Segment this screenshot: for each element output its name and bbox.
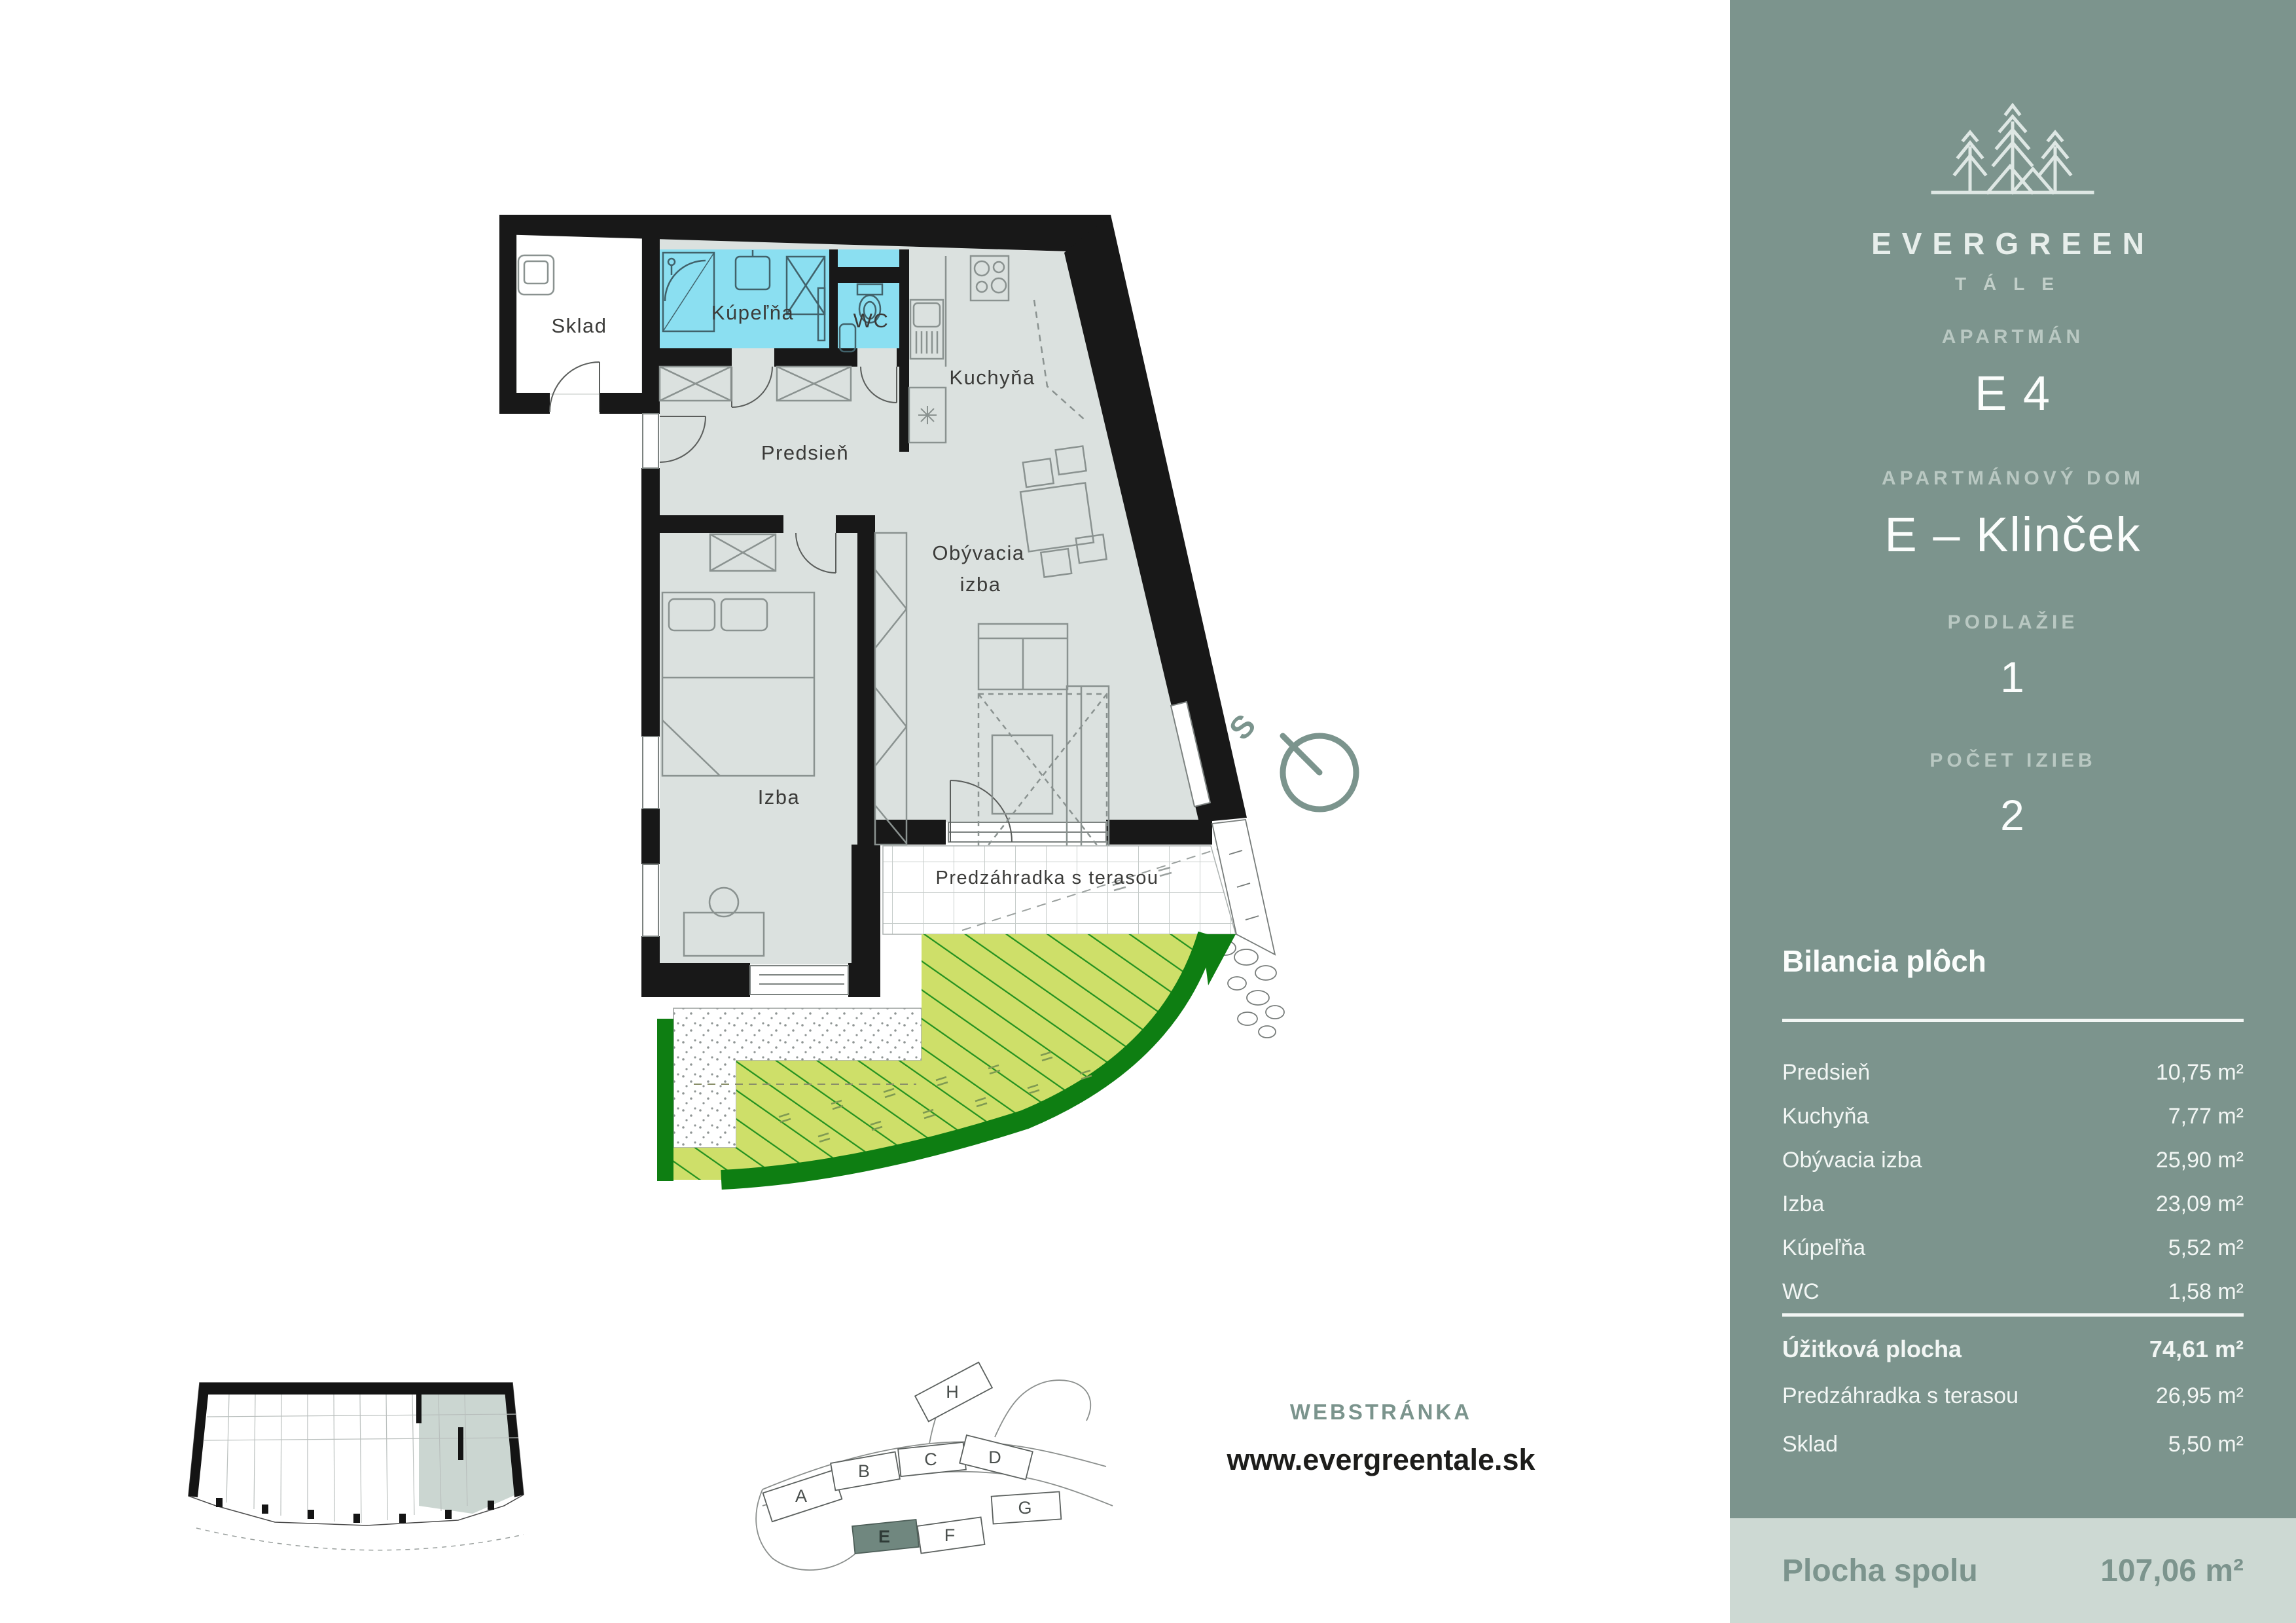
balance-row: Kuchyňa 7,77 m² (1782, 1104, 2244, 1129)
evergreen-trees-icon (1914, 84, 2111, 208)
brand-name: EVERGREEN (1730, 226, 2296, 261)
balance-title: Bilancia plôch (1782, 943, 1986, 979)
row-value: 26,95 m² (2156, 1383, 2244, 1409)
field-apartman-label: APARTMÁN (1730, 326, 2296, 348)
site-label-a: A (795, 1486, 807, 1506)
field-izby-value: 2 (1730, 790, 2296, 840)
building-mini-plan (188, 1383, 524, 1550)
brand-subtitle: TÁLE (1730, 274, 2296, 295)
row-label: Izba (1782, 1192, 1824, 1217)
row-value: 74,61 m² (2149, 1336, 2244, 1363)
row-label: Predzáhradka s terasou (1782, 1383, 2018, 1409)
field-podlazie-label: PODLAŽIE (1730, 611, 2296, 634)
row-label: Obývacia izba (1782, 1148, 1922, 1173)
room-label-wc: WC (853, 309, 889, 332)
apartment-floorplan: Sklad Kúpeľňa WC Kuchyňa Predsieň Obývac… (499, 215, 1284, 1181)
balance-row: Izba 23,09 m² (1782, 1192, 2244, 1217)
site-map: A B C D E F G H (756, 1362, 1113, 1570)
brochure-page: Sklad Kúpeľňa WC Kuchyňa Predsieň Obývac… (0, 0, 2296, 1623)
summary-row-sklad: Sklad 5,50 m² (1782, 1432, 2244, 1457)
row-label: Kuchyňa (1782, 1104, 1869, 1129)
room-label-obyvacia-2: izba (960, 573, 1001, 596)
room-label-izba: Izba (758, 786, 800, 809)
total-value: 107,06 m² (2100, 1553, 2244, 1589)
kupelna-floor (660, 249, 829, 348)
room-label-obyvacia-1: Obývacia (932, 541, 1024, 564)
site-label-b: B (858, 1461, 870, 1481)
row-value: 10,75 m² (2156, 1060, 2244, 1085)
row-label: Sklad (1782, 1432, 1838, 1457)
balance-row: Kúpeľňa 5,52 m² (1782, 1235, 2244, 1261)
row-value: 25,90 m² (2156, 1148, 2244, 1173)
total-area-bar: Plocha spolu 107,06 m² (1730, 1518, 2296, 1623)
field-podlazie-value: 1 (1730, 652, 2296, 702)
site-label-f: F (944, 1525, 956, 1545)
row-label: Predsieň (1782, 1060, 1870, 1085)
row-value: 7,77 m² (2168, 1104, 2244, 1129)
site-label-e: E (878, 1527, 890, 1546)
row-value: 5,52 m² (2168, 1235, 2244, 1261)
field-apartman-value: E 4 (1730, 365, 2296, 421)
site-label-h: H (946, 1382, 959, 1402)
balance-divider-bottom (1782, 1313, 2244, 1317)
summary-row-predzahradka: Predzáhradka s terasou 26,95 m² (1782, 1383, 2244, 1409)
field-izby-label: POČET IZIEB (1730, 750, 2296, 772)
balance-divider-top (1782, 1019, 2244, 1022)
site-label-d: D (988, 1448, 1001, 1467)
website-url: www.evergreentale.sk (1198, 1443, 1564, 1477)
room-label-kuchyna: Kuchyňa (949, 366, 1035, 389)
row-value: 23,09 m² (2156, 1192, 2244, 1217)
balance-row: WC 1,58 m² (1782, 1279, 2244, 1305)
website-label: WEBSTRÁNKA (1198, 1400, 1564, 1425)
terrace (883, 846, 1236, 934)
balance-row: Predsieň 10,75 m² (1782, 1060, 2244, 1085)
row-value: 5,50 m² (2168, 1432, 2244, 1457)
total-label: Plocha spolu (1782, 1553, 1978, 1589)
room-label-predsien: Predsieň (761, 441, 849, 464)
row-label: Úžitková plocha (1782, 1336, 1962, 1363)
field-dom-value: E – Klinček (1730, 507, 2296, 562)
balance-row: Obývacia izba 25,90 m² (1782, 1148, 2244, 1173)
row-label: Kúpeľňa (1782, 1235, 1865, 1261)
sidebar: EVERGREEN TÁLE APARTMÁN E 4 APARTMÁNOVÝ … (1730, 0, 2296, 1623)
room-label-sklad: Sklad (551, 314, 607, 337)
field-dom-label: APARTMÁNOVÝ DOM (1730, 467, 2296, 490)
wc-top-niche (838, 249, 899, 267)
row-value: 1,58 m² (2168, 1279, 2244, 1305)
compass-icon: S (1223, 708, 1356, 809)
website-block: WEBSTRÁNKA www.evergreentale.sk (1198, 1400, 1564, 1477)
room-label-kupelna: Kúpeľňa (711, 301, 794, 324)
site-label-g: G (1018, 1498, 1031, 1518)
summary-row-uzitkova: Úžitková plocha 74,61 m² (1782, 1336, 2244, 1363)
row-label: WC (1782, 1279, 1820, 1305)
room-label-terasa: Predzáhradka s terasou (936, 867, 1159, 888)
site-label-c: C (924, 1450, 937, 1469)
